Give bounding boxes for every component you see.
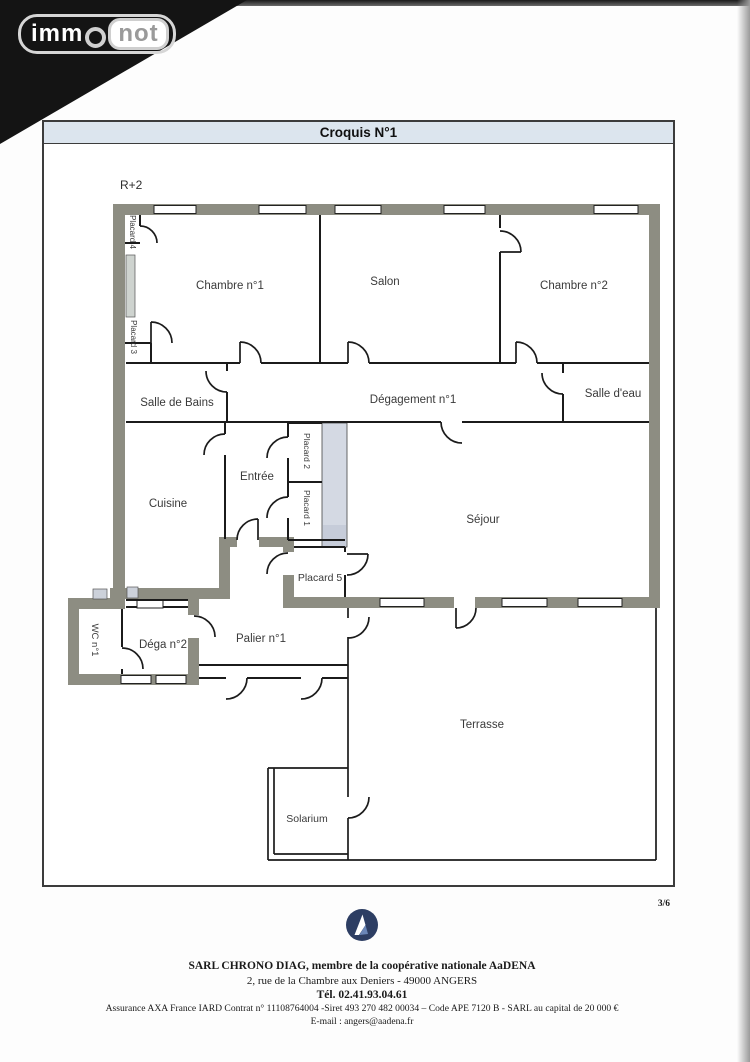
croquis-frame: Croquis N°1: [42, 120, 675, 887]
footer-company-line: SARL CHRONO DIAG, membre de la coopérati…: [32, 959, 692, 974]
footer-phone-line: Tél. 02.41.93.04.61: [32, 988, 692, 1002]
footer-legal-line: Assurance AXA France IARD Contrat n° 111…: [32, 1002, 692, 1015]
page-right-scan-shadow: [737, 0, 750, 1062]
logo-text-not: not: [108, 18, 168, 50]
floor-level-label: R+2: [120, 178, 142, 192]
footer: SARL CHRONO DIAG, membre de la coopérati…: [32, 908, 692, 1028]
logo-o-icon: o: [85, 27, 106, 48]
croquis-title: Croquis N°1: [44, 122, 673, 144]
footer-address-line: 2, rue de la Chambre aux Deniers - 49000…: [32, 974, 692, 988]
logo-text-immo: imm: [31, 22, 83, 46]
aadena-logo-icon: [345, 908, 379, 942]
scanned-document-page: imm o not Croquis N°1 R+2: [0, 0, 750, 1062]
footer-email-line: E-mail : angers@aadena.fr: [32, 1015, 692, 1028]
immonot-logo: imm o not: [18, 14, 176, 54]
